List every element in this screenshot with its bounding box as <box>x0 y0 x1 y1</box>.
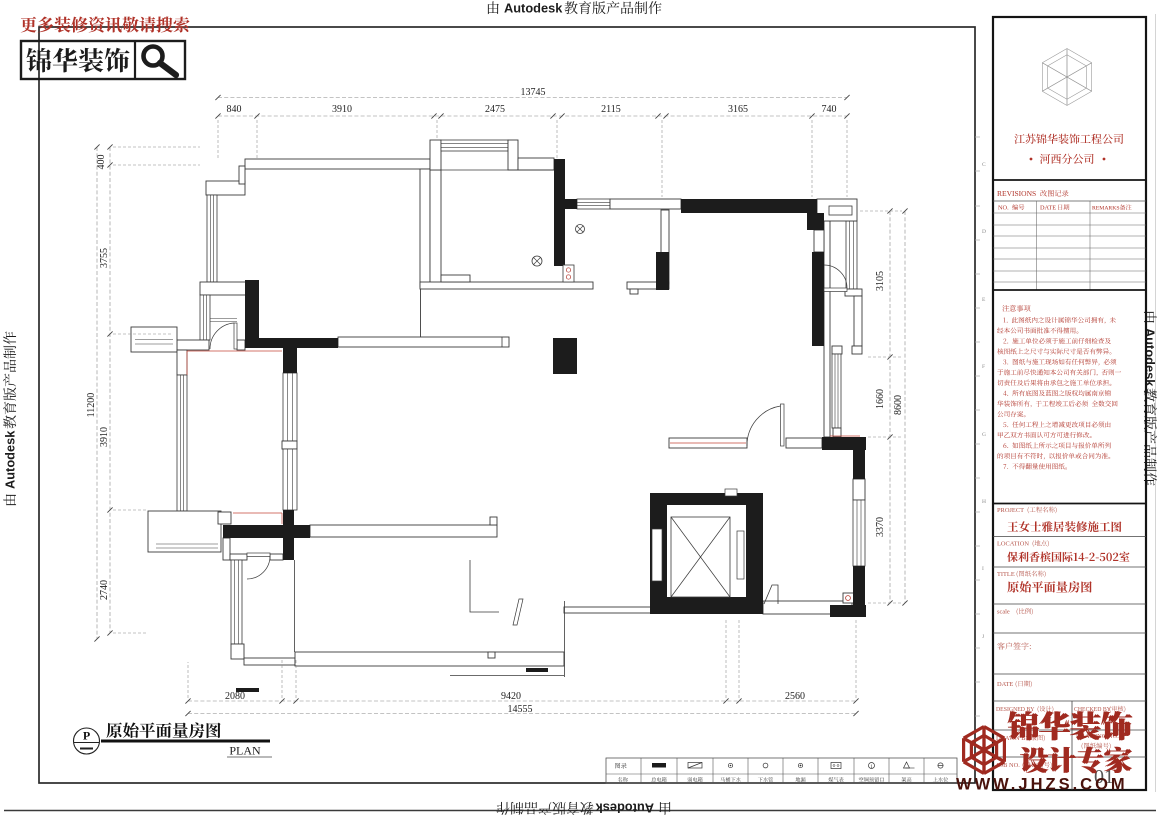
svg-text:9420: 9420 <box>501 691 521 702</box>
svg-text:TITLE: TITLE <box>997 571 1015 578</box>
svg-text:C: C <box>982 162 986 168</box>
svg-text:740: 740 <box>822 104 837 115</box>
svg-text:P: P <box>83 729 90 743</box>
svg-text:2080: 2080 <box>225 691 245 702</box>
svg-text:DATE: DATE <box>1040 205 1056 212</box>
svg-text:Autodesk: Autodesk <box>595 801 654 816</box>
svg-text:3910: 3910 <box>332 104 352 115</box>
svg-text:840: 840 <box>227 104 242 115</box>
svg-text:F: F <box>982 364 985 370</box>
svg-text:3105: 3105 <box>875 271 886 291</box>
svg-text:G: G <box>982 432 986 438</box>
svg-text:NO.: NO. <box>998 205 1009 212</box>
svg-text:2560: 2560 <box>785 691 805 702</box>
svg-text:PROJECT: PROJECT <box>997 507 1024 514</box>
svg-text:3165: 3165 <box>728 104 748 115</box>
svg-text:Autodesk: Autodesk <box>3 430 18 489</box>
svg-text:13745: 13745 <box>521 87 546 98</box>
svg-text:400: 400 <box>96 155 107 170</box>
svg-text:LOCATION: LOCATION <box>997 541 1029 548</box>
svg-text:1660: 1660 <box>875 389 886 409</box>
svg-text:PLAN: PLAN <box>229 744 261 758</box>
svg-text:scale: scale <box>997 609 1010 616</box>
svg-text:2740: 2740 <box>99 580 110 600</box>
svg-text:DATE: DATE <box>997 681 1013 688</box>
svg-text:3755: 3755 <box>99 248 110 268</box>
svg-text:WWW.JHZS.COM: WWW.JHZS.COM <box>956 776 1128 794</box>
svg-text:8600: 8600 <box>893 395 904 415</box>
svg-text:REMARKS: REMARKS <box>1092 206 1120 212</box>
svg-text:Autodesk: Autodesk <box>504 1 563 16</box>
svg-text:2115: 2115 <box>601 104 621 115</box>
svg-text:Autodesk: Autodesk <box>1143 328 1158 387</box>
svg-text:D: D <box>982 229 986 235</box>
svg-text:I: I <box>982 566 984 572</box>
svg-text:14555: 14555 <box>508 704 533 715</box>
svg-text:11200: 11200 <box>86 393 97 418</box>
svg-text:3910: 3910 <box>99 427 110 447</box>
svg-text:H: H <box>982 499 986 505</box>
svg-text:REVISIONS: REVISIONS <box>997 189 1036 198</box>
svg-text:3370: 3370 <box>875 517 886 537</box>
svg-text:2475: 2475 <box>485 104 505 115</box>
